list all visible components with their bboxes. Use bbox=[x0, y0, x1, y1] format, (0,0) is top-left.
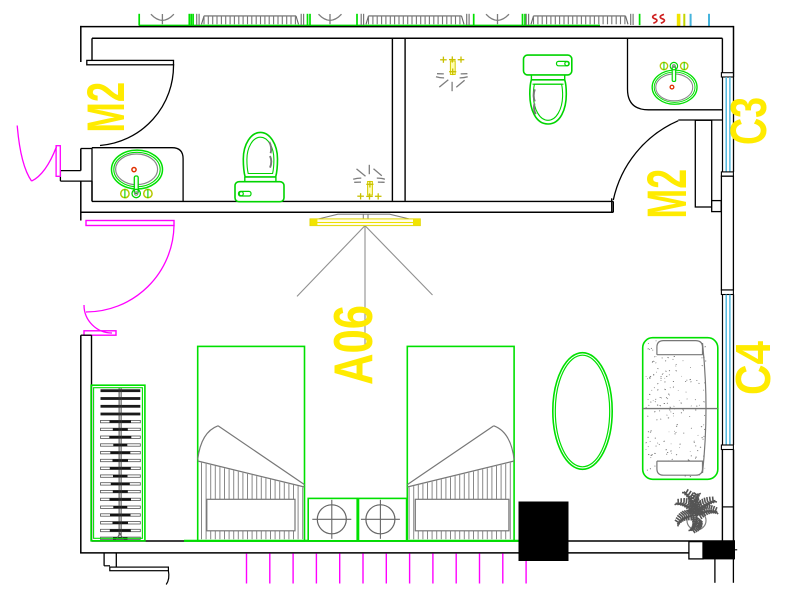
svg-text:C3: C3 bbox=[720, 97, 777, 145]
svg-text:A06: A06 bbox=[322, 305, 384, 385]
svg-text:M2: M2 bbox=[77, 82, 136, 133]
svg-text:C4: C4 bbox=[727, 341, 781, 395]
svg-text:M2: M2 bbox=[635, 169, 698, 219]
